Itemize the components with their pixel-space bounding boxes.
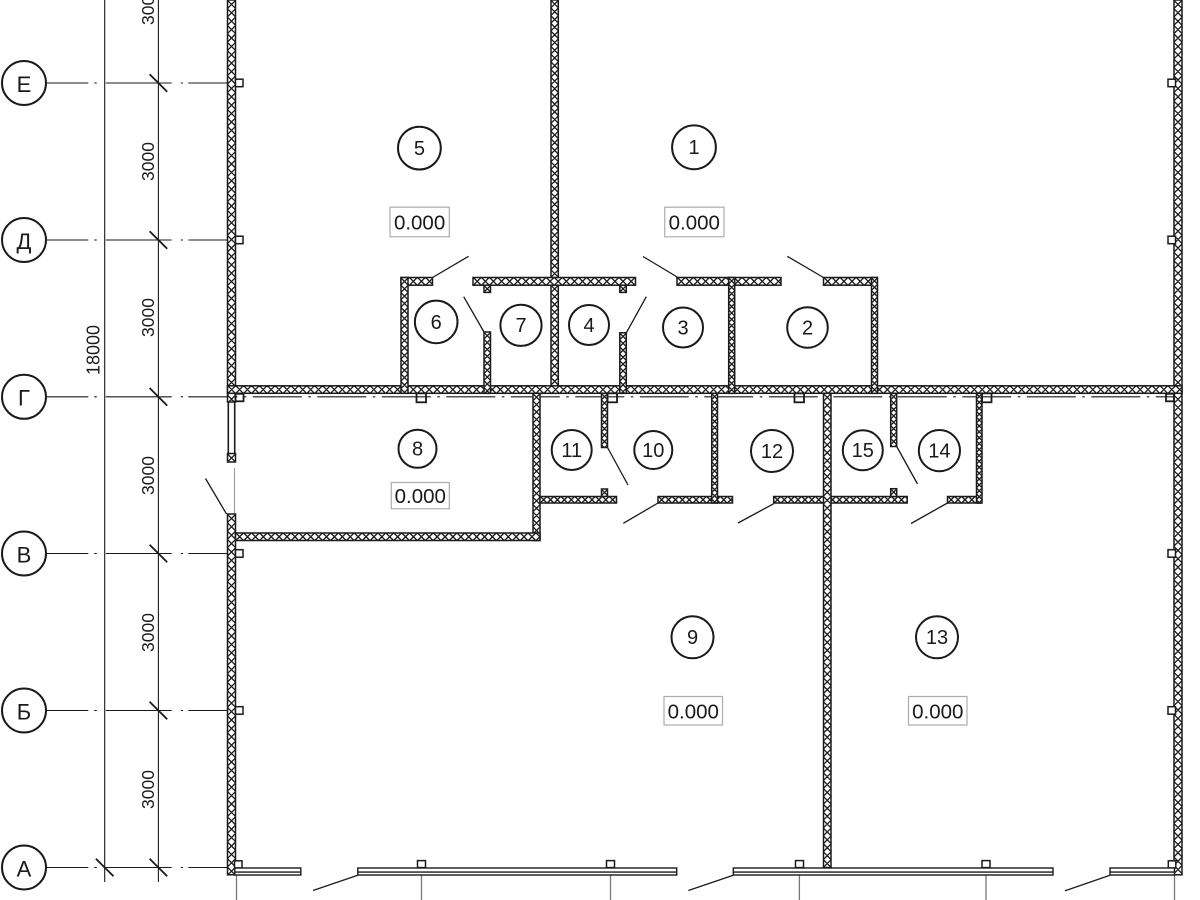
svg-text:1: 1 — [688, 137, 699, 159]
svg-text:0.000: 0.000 — [912, 700, 963, 723]
svg-text:2: 2 — [802, 317, 813, 339]
svg-text:3000: 3000 — [138, 770, 158, 809]
svg-text:10: 10 — [642, 440, 664, 462]
svg-text:13: 13 — [926, 627, 948, 649]
svg-text:14: 14 — [928, 441, 950, 463]
svg-text:12: 12 — [761, 441, 783, 463]
svg-text:3000: 3000 — [138, 0, 158, 25]
svg-text:6: 6 — [431, 312, 442, 334]
svg-text:А: А — [17, 856, 32, 881]
svg-text:0.000: 0.000 — [668, 700, 719, 723]
svg-text:11: 11 — [561, 440, 582, 462]
svg-text:0.000: 0.000 — [394, 212, 445, 235]
svg-text:18000: 18000 — [83, 325, 103, 375]
svg-text:0.000: 0.000 — [669, 212, 720, 235]
svg-text:5: 5 — [414, 138, 425, 160]
svg-text:15: 15 — [852, 440, 874, 462]
svg-text:Г: Г — [18, 386, 30, 411]
svg-text:Б: Б — [17, 699, 31, 724]
svg-text:Д: Д — [17, 229, 32, 254]
svg-text:7: 7 — [515, 315, 526, 337]
svg-text:3000: 3000 — [138, 142, 158, 181]
svg-text:3000: 3000 — [138, 456, 158, 495]
svg-text:0.000: 0.000 — [395, 485, 446, 508]
svg-text:Е: Е — [17, 72, 32, 97]
svg-text:8: 8 — [412, 439, 423, 461]
svg-text:3000: 3000 — [138, 298, 158, 337]
svg-text:9: 9 — [687, 627, 698, 649]
svg-text:4: 4 — [583, 315, 594, 337]
svg-text:В: В — [17, 542, 32, 567]
svg-text:3: 3 — [677, 317, 688, 339]
svg-text:3000: 3000 — [138, 613, 158, 652]
